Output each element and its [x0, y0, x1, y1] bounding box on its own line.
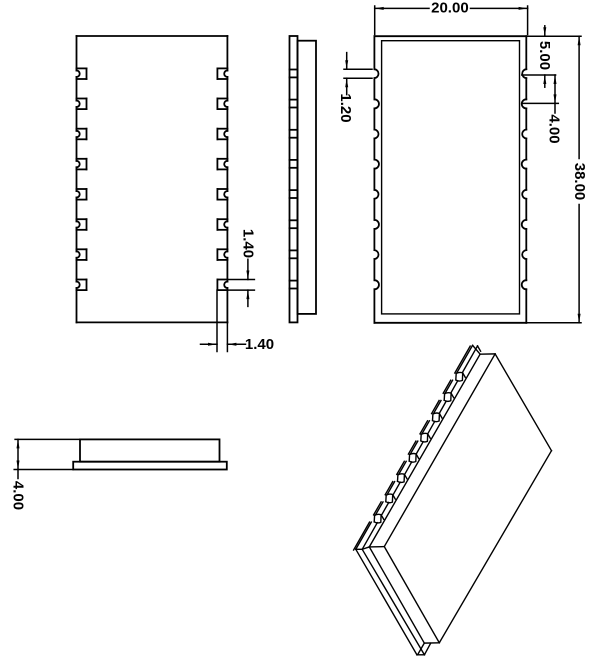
svg-text:1.40: 1.40 — [245, 336, 274, 353]
svg-text:5.00: 5.00 — [536, 41, 553, 70]
svg-text:4.00: 4.00 — [9, 481, 26, 510]
svg-text:1.20: 1.20 — [337, 93, 354, 122]
svg-text:38.00: 38.00 — [571, 163, 588, 201]
svg-text:4.00: 4.00 — [546, 114, 563, 143]
svg-text:1.40: 1.40 — [240, 229, 257, 258]
svg-text:20.00: 20.00 — [431, 0, 469, 17]
